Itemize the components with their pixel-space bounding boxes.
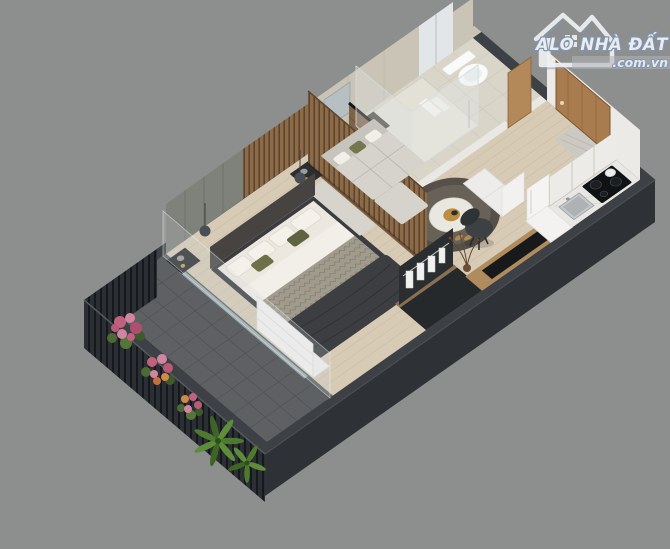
pendant-lamp — [295, 173, 306, 184]
hanging-clothes — [406, 271, 413, 288]
hanging-clothes — [417, 263, 424, 280]
brand-text: ALO NHÀ ĐẤT — [534, 33, 669, 54]
floorplan-render: ALO NHÀ ĐẤT .com.vn — [0, 0, 670, 549]
brand-domain-text: .com.vn — [612, 55, 668, 70]
pendant-lamp — [200, 226, 211, 237]
hanging-clothes — [439, 248, 445, 263]
hanging-clothes — [428, 256, 435, 272]
apartment-scene: ALO NHÀ ĐẤT .com.vn — [0, 0, 670, 549]
door-handle — [560, 101, 564, 105]
